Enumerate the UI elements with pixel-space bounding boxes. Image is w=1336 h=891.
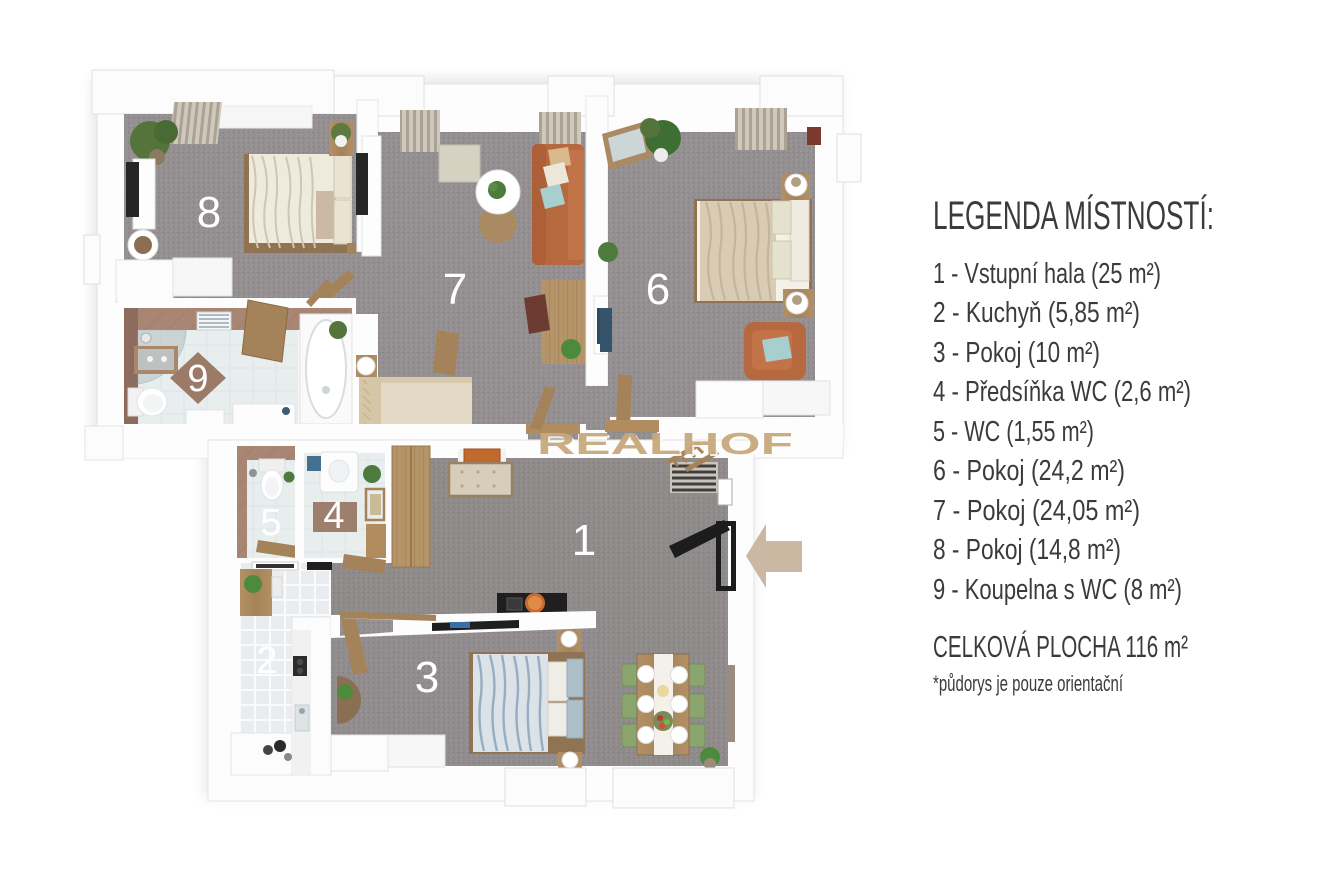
svg-text:4 - Předsíňka WC (2,6 m²): 4 - Předsíňka WC (2,6 m²) [933, 376, 1191, 408]
svg-text:LEGENDA MÍSTNOSTÍ:: LEGENDA MÍSTNOSTÍ: [933, 193, 1214, 238]
svg-text:2 - Kuchyň (5,85 m²): 2 - Kuchyň (5,85 m²) [933, 297, 1140, 329]
svg-text:4: 4 [323, 495, 344, 537]
svg-text:2: 2 [256, 640, 277, 682]
svg-text:6: 6 [646, 265, 670, 314]
svg-text:6 - Pokoj (24,2 m²): 6 - Pokoj (24,2 m²) [933, 455, 1125, 487]
svg-text:9 - Koupelna s WC (8 m²): 9 - Koupelna s WC (8 m²) [933, 574, 1182, 606]
svg-text:8: 8 [197, 188, 221, 237]
svg-text:5: 5 [260, 502, 281, 544]
svg-text:*půdorys je pouze orientační: *půdorys je pouze orientační [933, 671, 1123, 696]
svg-text:7 - Pokoj (24,05 m²): 7 - Pokoj (24,05 m²) [933, 495, 1140, 527]
svg-text:3: 3 [415, 653, 439, 702]
svg-text:3 - Pokoj (10 m²): 3 - Pokoj (10 m²) [933, 337, 1100, 369]
svg-text:1 - Vstupní hala (25 m²): 1 - Vstupní hala (25 m²) [933, 258, 1161, 290]
svg-text:9: 9 [187, 358, 208, 400]
svg-text:1: 1 [572, 516, 596, 565]
svg-text:5 - WC (1,55 m²): 5 - WC (1,55 m²) [933, 416, 1094, 448]
svg-text:7: 7 [443, 265, 467, 314]
svg-text:CELKOVÁ PLOCHA 116 m²: CELKOVÁ PLOCHA 116 m² [933, 629, 1188, 664]
svg-text:REALHOF: REALHOF [537, 426, 793, 461]
svg-text:8 - Pokoj (14,8 m²): 8 - Pokoj (14,8 m²) [933, 534, 1121, 566]
